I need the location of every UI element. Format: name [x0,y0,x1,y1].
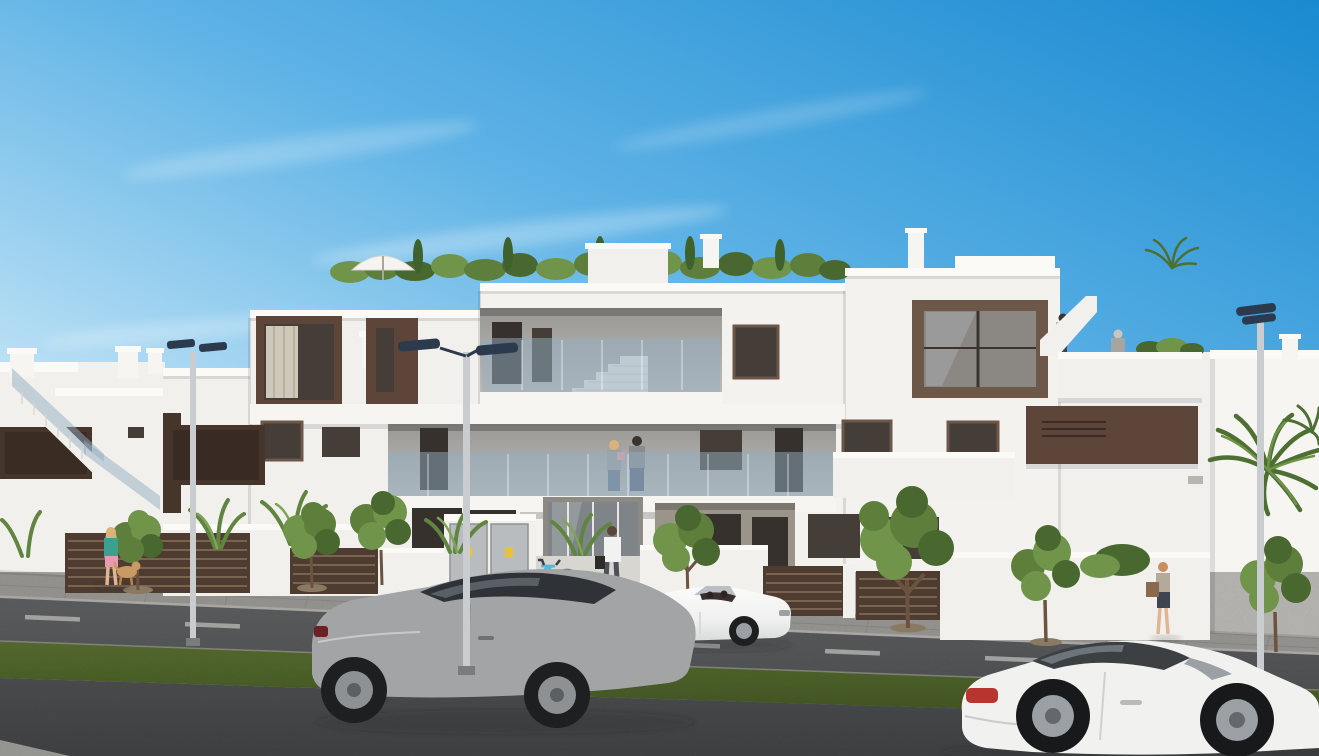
shadow [94,582,130,590]
hub [347,683,361,697]
shadow-line [1058,398,1202,403]
brown-panel-inner [173,430,259,480]
top-floor-corridor [480,308,722,406]
lamp-base [458,666,475,675]
lamp-pole [463,352,470,672]
bush [1080,554,1120,578]
headrest [721,591,728,598]
woman-head [609,440,619,450]
shoulder-bag [1146,582,1159,597]
hub [1229,712,1245,728]
window [262,422,302,460]
cap-left-wing [163,368,250,376]
window-slit [376,328,394,392]
wall-cap [940,552,1210,558]
head [607,526,617,536]
solid-balcony-parapet [833,452,1015,498]
lamp-base [186,638,200,646]
ceiling-shadow [388,424,836,431]
lamp-pole [190,352,196,644]
cap-centre [480,283,845,291]
cap-right-tower [845,268,1060,276]
grille [779,610,790,616]
cap-shadow [845,276,1060,279]
terrace-parapet-cap [1058,352,1202,359]
panel-shadow [1026,464,1198,469]
headrest [707,592,714,599]
cap-shadow [163,376,250,379]
warning-sticker [505,547,513,557]
door-handle [1120,700,1142,705]
window [843,421,891,457]
hub [1045,708,1061,724]
bg-left-small-window [128,427,144,438]
man-head [632,436,642,446]
shirt [604,537,621,562]
head [1158,562,1168,572]
window [808,514,860,558]
wall-cap [378,548,448,553]
lamp-pole [1257,320,1264,710]
taillight [966,688,998,703]
bg-right-cap [1210,350,1319,359]
bg-right-chimney [1282,338,1298,364]
cap-shadow [480,291,845,294]
hub [550,688,564,702]
rendered-photo [0,0,1319,756]
floor-band [250,404,845,424]
briefcase [595,556,605,569]
bg-right-chimney-cap [1279,334,1301,339]
right-tower-glazing [912,300,1048,398]
scene-canvas [0,0,1319,756]
window [322,427,360,457]
fence-post [843,564,855,618]
taillight [314,626,328,637]
porch-shadow [655,503,795,510]
corridor-fascia [480,392,722,406]
wall-light [1188,476,1203,484]
terrace-parapet [1058,352,1202,402]
rim [736,623,752,639]
window [734,326,778,378]
ceiling-shadow [480,308,722,316]
door-handle [478,636,494,640]
walkway-glass-balustrade [388,452,836,498]
bg-left-parapet2 [55,388,165,396]
top [104,538,118,558]
balcony-cap [833,452,1015,458]
